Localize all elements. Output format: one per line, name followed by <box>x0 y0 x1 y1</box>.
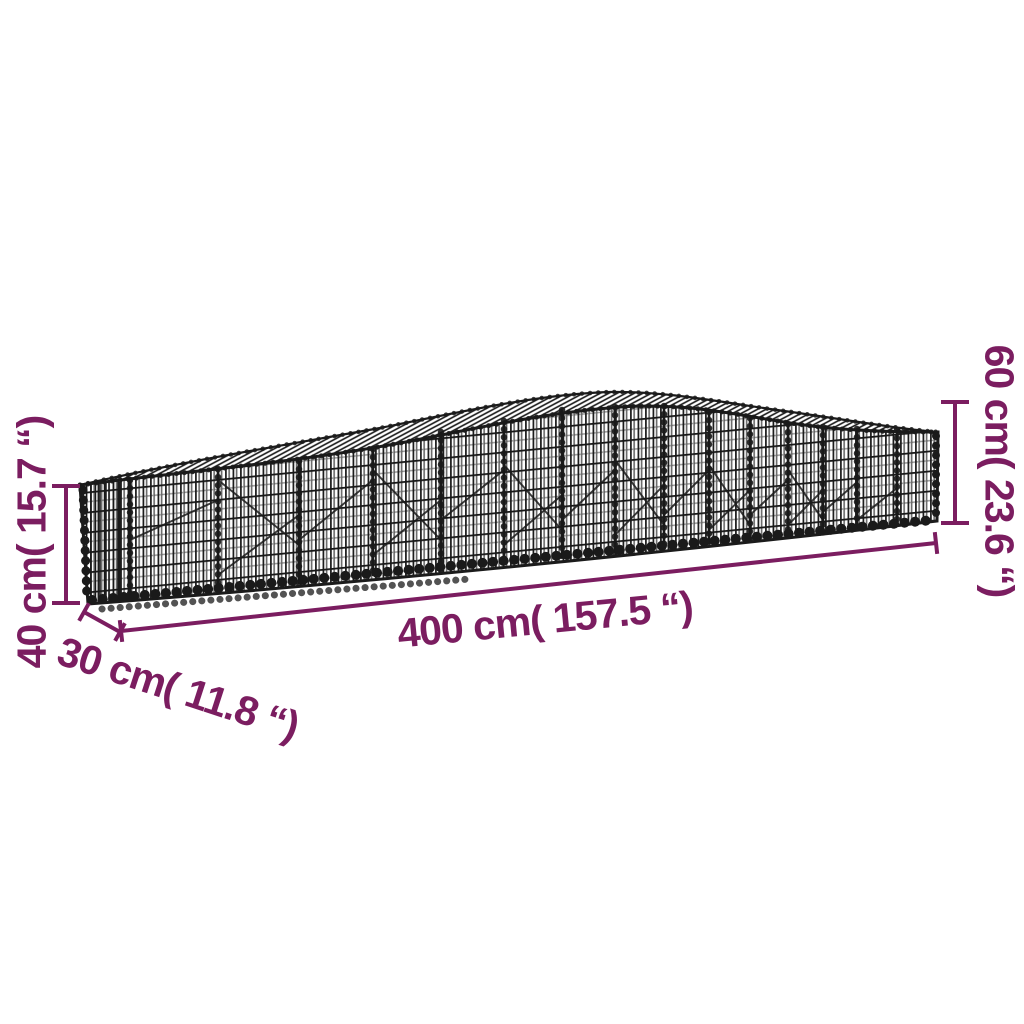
dimension-line-height-left <box>52 486 80 603</box>
dimension-line-height-right <box>941 402 969 523</box>
dimension-label-height-left: 40 cm( 15.7 “) <box>9 416 56 669</box>
gabion-basket-illustration <box>0 0 1024 1024</box>
product-dimension-diagram: 40 cm( 15.7 “) 60 cm( 23.6 “) 400 cm( 15… <box>0 0 1024 1024</box>
basket-mesh <box>70 390 950 620</box>
dimension-label-height-right: 60 cm( 23.6 “) <box>976 345 1023 598</box>
